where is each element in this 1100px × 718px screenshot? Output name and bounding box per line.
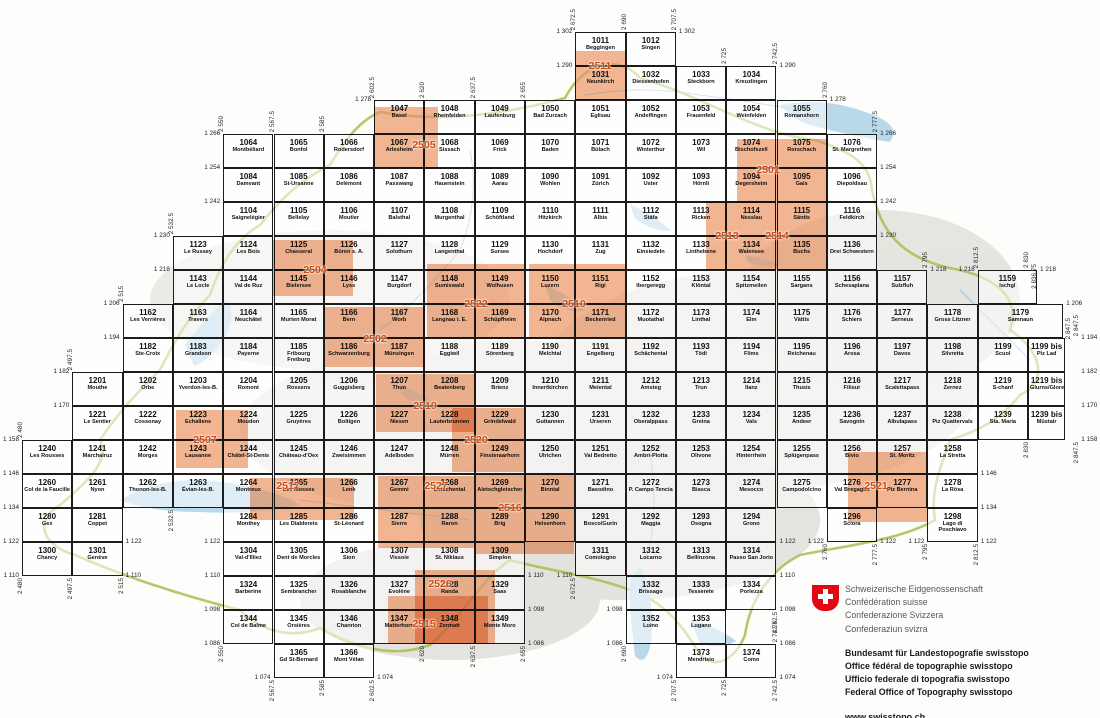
sheet-name: Glurns/Glorenza: [1029, 385, 1064, 391]
sheet-name: Degersheim: [727, 181, 775, 187]
composite-number-2521: 2521: [864, 480, 887, 492]
sheet-name: Grono: [727, 521, 775, 527]
edge-label-east: 2 672.5: [570, 578, 577, 599]
sheet-number: 1166: [325, 308, 373, 317]
sheet-name: Tesserete: [677, 589, 725, 595]
edge-label-east: 2 690: [621, 646, 628, 662]
sheet-name: Feldkirch: [828, 215, 876, 221]
sheet-cell-1313: 1313Bellinzona: [676, 542, 726, 576]
sheet-cell-1236: 1236Savognin: [827, 406, 877, 440]
sheet-cell-1217: 1217Scalettapass: [877, 372, 927, 406]
sheet-number: 1196: [828, 342, 876, 351]
sheet-number: 1257: [878, 444, 926, 453]
sheet-name: Balsthal: [375, 215, 423, 221]
sheet-name: Bivio: [828, 453, 876, 459]
sheet-name: Moutier: [325, 215, 373, 221]
sheet-number: 1090: [526, 172, 574, 181]
sheet-cell-1199: 1199Scuol: [978, 338, 1028, 372]
sheet-name: Chancy: [23, 555, 71, 561]
sheet-cell-1332: 1332Brissago: [626, 576, 676, 610]
sheet-name: Einsiedeln: [627, 249, 675, 255]
composite-number-2514: 2514: [765, 230, 788, 242]
sheet-number: 1305: [275, 546, 323, 555]
sheet-number: 1327: [375, 580, 423, 589]
sheet-name: Binntal: [526, 487, 574, 493]
sheet-cell-1296: 1296Sciora: [827, 508, 877, 542]
sheet-number: 1225: [275, 410, 323, 419]
sheet-number: 1325: [275, 580, 323, 589]
sheet-cell-1087: 1087Passwang: [374, 168, 424, 202]
office-name-en: Federal Office of Topography swisstopo: [845, 686, 1092, 699]
sheet-name: Barberine: [224, 589, 272, 595]
sheet-cell-1172: 1172Muotathal: [626, 304, 676, 338]
edge-label-east: 2 742.5: [772, 680, 779, 701]
sheet-cell-1304: 1304Val-d'Illiez: [223, 542, 273, 576]
sheet-number: 1032: [627, 70, 675, 79]
edge-label-north: 1 170: [53, 402, 69, 409]
sheet-cell-1218: 1218Zernez: [927, 372, 977, 406]
sheet-cell-1281: 1281Coppet: [72, 508, 122, 542]
sheet-number: 1179: [979, 308, 1063, 317]
sheet-cell-1112: 1112Stäfa: [626, 202, 676, 236]
sheet-name: Silvretta: [928, 351, 976, 357]
sheet-cell-1033: 1033Steckborn: [676, 66, 726, 100]
sheet-number: 1075: [778, 138, 826, 147]
sheet-cell-1216: 1216Filisur: [827, 372, 877, 406]
sheet-name: Lyss: [325, 283, 373, 289]
sheet-cell-1219: 1219S-chanf: [978, 372, 1028, 406]
sheet-number: 1231: [576, 410, 624, 419]
edge-label-north: 1 146: [981, 470, 997, 477]
sheet-number: 1224: [224, 410, 272, 419]
sheet-cell-1111: 1111Albis: [575, 202, 625, 236]
sheet-cell-1214: 1214Ilanz: [726, 372, 776, 406]
sheet-number: 1112: [627, 206, 675, 215]
sheet-name: Châtel-St-Denis: [224, 453, 272, 459]
sheet-name: Nyon: [73, 487, 121, 493]
sheet-cell-1334: 1334Porlezza: [726, 576, 776, 610]
sheet-number: 1165: [275, 308, 323, 317]
sheet-cell-1206: 1206Guggisberg: [324, 372, 374, 406]
sheet-number: 1329: [476, 580, 524, 589]
sheet-name: Uster: [627, 181, 675, 187]
edge-label-east: 2 812.5: [973, 247, 980, 268]
sheet-number: 1109: [476, 206, 524, 215]
sheet-name: Schesaplana: [828, 283, 876, 289]
sheet-cell-1089: 1089Aarau: [475, 168, 525, 202]
sheet-cell-1344: 1344Col de Balme: [223, 610, 273, 644]
sheet-cell-1286: 1286St-Léonard: [324, 508, 374, 542]
sheet-name: Hochdorf: [526, 249, 574, 255]
sheet-cell-1143: 1143Le Locle: [173, 270, 223, 304]
sheet-name: Albis: [576, 215, 624, 221]
sheet-cell-1074: 1074Bischofszell: [726, 134, 776, 168]
composite-number-2504: 2504: [303, 264, 326, 276]
edge-label-north: 1 098: [204, 606, 220, 613]
sheet-number: 1237: [878, 410, 926, 419]
edge-label-east: 2 532.5: [168, 213, 175, 234]
sheet-name: Mürren: [425, 453, 473, 459]
sheet-number: 1110: [526, 206, 574, 215]
sheet-cell-1314: 1314Passo San Jorio: [726, 542, 776, 576]
sheet-cell-1032: 1032Diessenhofen: [626, 66, 676, 100]
sheet-number: 1313: [677, 546, 725, 555]
sheet-number: 1193: [677, 342, 725, 351]
sheet-cell-1258: 1258La Stretta: [927, 440, 977, 474]
sheet-name: Porlezza: [727, 589, 775, 595]
sheet-name: Como: [727, 657, 775, 663]
sheet-number: 1311: [576, 546, 624, 555]
sheet-name: Col de la Faucille: [23, 487, 71, 493]
sheet-cell-1195: 1195Reichenau: [777, 338, 827, 372]
sheet-name: Urseren: [576, 419, 624, 425]
sheet-number: 1087: [375, 172, 423, 181]
sheet-name: Zweisimmen: [325, 453, 373, 459]
sheet-number: 1274: [727, 478, 775, 487]
sheet-cell-1197: 1197Davos: [877, 338, 927, 372]
sheet-name: Le Locle: [174, 283, 222, 289]
sheet-name: Innertkirchen: [526, 385, 574, 391]
sheet-number: 1272: [627, 478, 675, 487]
sheet-cell-1051: 1051Eglisau: [575, 100, 625, 134]
swisstopo-url: www.swisstopo.ch: [845, 712, 1092, 718]
sheet-name: Thun: [375, 385, 423, 391]
office-name-de: Bundesamt für Landestopografie swisstopo: [845, 647, 1092, 660]
sheet-number: 1050: [526, 104, 574, 113]
sheet-number: 1132: [627, 240, 675, 249]
sheet-cell-1199-bis: 1199 bisPiz Lad: [1028, 338, 1065, 372]
sheet-cell-1300: 1300Chancy: [22, 542, 72, 576]
sheet-name: Baden: [526, 147, 574, 153]
sheet-name: Hinterrhein: [727, 453, 775, 459]
sheet-name: Schächental: [627, 351, 675, 357]
sheet-number: 1239: [979, 410, 1027, 419]
sheet-name: Evolène: [375, 589, 423, 595]
sheet-number: 1285: [275, 512, 323, 521]
edge-label-east: 2 637.5: [470, 77, 477, 98]
sheet-cell-1254: 1254Hinterrhein: [726, 440, 776, 474]
sheet-cell-1177: 1177Serneus: [877, 304, 927, 338]
sheet-cell-1075: 1075Rorschach: [777, 134, 827, 168]
sheet-number: 1089: [476, 172, 524, 181]
sheet-cell-1146: 1146Lyss: [324, 270, 374, 304]
sheet-number: 1266: [325, 478, 373, 487]
sheet-number: 1314: [727, 546, 775, 555]
sheet-cell-1292: 1292Maggia: [626, 508, 676, 542]
sheet-number: 1334: [727, 580, 775, 589]
sheet-name: Schwarzenburg: [325, 351, 373, 357]
sheet-name: Bielersee: [275, 283, 323, 289]
sheet-cell-1346: 1346Chanrion: [324, 610, 374, 644]
sheet-number: 1352: [627, 614, 675, 623]
sheet-name: Les Rousses: [23, 453, 71, 459]
sheet-cell-1130: 1130Hochdorf: [525, 236, 575, 270]
sheet-number: 1064: [224, 138, 272, 147]
sheet-number: 1264: [224, 478, 272, 487]
sheet-cell-1156: 1156Schesaplana: [827, 270, 877, 304]
sheet-number: 1116: [828, 206, 876, 215]
sheet-cell-1312: 1312Locarno: [626, 542, 676, 576]
sheet-cell-1085: 1085St-Ursanne: [274, 168, 324, 202]
composite-number-2505: 2505: [412, 139, 435, 151]
sheet-number: 1253: [677, 444, 725, 453]
sheet-name: Simplon: [476, 555, 524, 561]
sheet-number: 1163: [174, 308, 222, 317]
sheet-name: Albulapass: [878, 419, 926, 425]
sheet-number: 1217: [878, 376, 926, 385]
sheet-number: 1106: [325, 206, 373, 215]
sheet-name: Biasca: [677, 487, 725, 493]
sheet-name: Grandson: [174, 351, 222, 357]
sheet-number: 1239 bis: [1029, 410, 1064, 419]
sheet-name: St-Ursanne: [275, 181, 323, 187]
sheet-number: 1304: [224, 546, 272, 555]
sheet-number: 1267: [375, 478, 423, 487]
sheet-number: 1281: [73, 512, 121, 521]
sheet-cell-1176: 1176Schiers: [827, 304, 877, 338]
sheet-number: 1178: [928, 308, 976, 317]
sheet-name: Ischgl: [979, 283, 1036, 289]
edge-label-east: 2 760: [822, 82, 829, 98]
sheet-cell-1284: 1284Monthey: [223, 508, 273, 542]
sheet-cell-1260: 1260Col de la Faucille: [22, 474, 72, 508]
sheet-name: Filisur: [828, 385, 876, 391]
sheet-number: 1236: [828, 410, 876, 419]
government-name-fr: Confédération suisse: [845, 596, 1092, 609]
edge-label-north: 1 146: [3, 470, 19, 477]
sheet-cell-1345: 1345Orsières: [274, 610, 324, 644]
sheet-name: Worb: [375, 317, 423, 323]
sheet-number: 1066: [325, 138, 373, 147]
sheet-name: Ambri-Piotta: [627, 453, 675, 459]
edge-label-north: 1 098: [607, 606, 623, 613]
sheet-cell-1086: 1086Delémont: [324, 168, 374, 202]
sheet-number: 1307: [375, 546, 423, 555]
sheet-name: Basodino: [576, 487, 624, 493]
sheet-cell-1091: 1091Zürich: [575, 168, 625, 202]
sheet-name: Lausanne: [174, 453, 222, 459]
sheet-name: Savognin: [828, 419, 876, 425]
sheet-cell-1293: 1293Osogna: [676, 508, 726, 542]
edge-label-north: 1 122: [3, 538, 19, 545]
sheet-number: 1088: [425, 172, 473, 181]
sheet-cell-1124: 1124Les Bois: [223, 236, 273, 270]
sheet-number: 1114: [727, 206, 775, 215]
sheet-name: Olivone: [677, 453, 725, 459]
sheet-number: 1124: [224, 240, 272, 249]
sheet-name: Greina: [677, 419, 725, 425]
sheet-name: Andelfingen: [627, 113, 675, 119]
composite-number-2516: 2516: [498, 502, 521, 514]
sheet-cell-1189: 1189Sörenberg: [475, 338, 525, 372]
sheet-name: Ilanz: [727, 385, 775, 391]
sheet-cell-1290: 1290Helsenhorn: [525, 508, 575, 542]
sheet-name: Kreuzlingen: [727, 79, 775, 85]
edge-label-north: 1 110: [528, 572, 544, 579]
sheet-cell-1104: 1104Saignelégier: [223, 202, 273, 236]
sheet-number: 1129: [476, 240, 524, 249]
sheet-number: 1270: [526, 478, 574, 487]
sheet-name: Saignelégier: [224, 215, 272, 221]
sheet-cell-1263: 1263Évian-les-B.: [173, 474, 223, 508]
sheet-name: Amsteg: [627, 385, 675, 391]
sheet-cell-1164: 1164Neuchâtel: [223, 304, 273, 338]
sheet-number: 1111: [576, 206, 624, 215]
sheet-cell-1215: 1215Thusis: [777, 372, 827, 406]
sheet-cell-1076: 1076St. Margrethen: [827, 134, 877, 168]
sheet-name: Säntis: [778, 215, 826, 221]
edge-label-east: 2 655: [520, 82, 527, 98]
sheet-cell-1106: 1106Moutier: [324, 202, 374, 236]
sheet-number: 1147: [375, 274, 423, 283]
sheet-number: 1208: [425, 376, 473, 385]
sheet-cell-1285: 1285Les Diablerets: [274, 508, 324, 542]
sheet-cell-1250: 1250Ulrichen: [525, 440, 575, 474]
sheet-number: 1306: [325, 546, 373, 555]
sheet-name: Tödi: [677, 351, 725, 357]
sheet-cell-1108: 1108Murgenthal: [424, 202, 474, 236]
edge-label-north: 1 074: [377, 674, 393, 681]
sheet-cell-1238: 1238Piz Quattervals: [927, 406, 977, 440]
sheet-number: 1136: [828, 240, 876, 249]
sheet-number: 1157: [878, 274, 926, 283]
sheet-cell-1252: 1252Ambri-Piotta: [626, 440, 676, 474]
sheet-number: 1047: [375, 104, 423, 113]
sheet-cell-1136: 1136Drei Schwestern: [827, 236, 877, 270]
sheet-cell-1065: 1065Bonfol: [274, 134, 324, 168]
edge-label-north: 1 242: [880, 198, 896, 205]
sheet-name: Coppet: [73, 521, 121, 527]
edge-label-east: 2 690: [621, 14, 628, 30]
edge-label-east: 2 836.75: [1031, 264, 1038, 289]
sheet-name: Sörenberg: [476, 351, 524, 357]
sheet-name: Osogna: [677, 521, 725, 527]
sheet-name: Eglisau: [576, 113, 624, 119]
edge-label-east: 2 602.5: [369, 77, 376, 98]
sheet-cell-1047: 1047Basel: [374, 100, 424, 134]
sheet-cell-1210: 1210Innertkirchen: [525, 372, 575, 406]
edge-label-east: 2 707.5: [671, 9, 678, 30]
sheet-name: Comologno: [576, 555, 624, 561]
sheet-number: 1312: [627, 546, 675, 555]
sheet-cell-1211: 1211Meiental: [575, 372, 625, 406]
sheet-cell-1105: 1105Bellelay: [274, 202, 324, 236]
sheet-number: 1233: [677, 410, 725, 419]
sheet-number: 1051: [576, 104, 624, 113]
edge-label-north: 1 110: [780, 572, 796, 579]
sheet-name: St. Moritz: [878, 453, 926, 459]
government-name-rm: Confederaziun svizra: [845, 623, 1092, 636]
sheet-name: Ulrichen: [526, 453, 574, 459]
sheet-name: Guttannen: [526, 419, 574, 425]
sheet-cell-1072: 1072Winterthur: [626, 134, 676, 168]
sheet-number: 1192: [627, 342, 675, 351]
edge-label-east: 2 777.5: [872, 111, 879, 132]
edge-label-east: 2 497.5: [67, 578, 74, 599]
sheet-number: 1349: [476, 614, 524, 623]
sheet-name: Bonfol: [275, 147, 323, 153]
edge-label-north: 1 122: [981, 538, 997, 545]
sheet-number: 1127: [375, 240, 423, 249]
sheet-number: 1096: [828, 172, 876, 181]
sheet-name: Ricken: [677, 215, 725, 221]
edge-label-east: 2 585: [319, 680, 326, 696]
sheet-number: 1143: [174, 274, 222, 283]
sheet-number: 1271: [576, 478, 624, 487]
sheet-name: Diessenhofen: [627, 79, 675, 85]
sheet-name: Gemmi: [375, 487, 423, 493]
sheet-name: Finsteraarhorn: [476, 453, 524, 459]
sheet-name: Gd St-Bernard: [275, 657, 323, 663]
sheet-number: 1176: [828, 308, 876, 317]
edge-label-east: 2 847.5: [1065, 318, 1072, 339]
sheet-number: 1229: [476, 410, 524, 419]
sheet-number: 1162: [124, 308, 172, 317]
sheet-number: 1246: [325, 444, 373, 453]
sheet-number: 1164: [224, 308, 272, 317]
sheet-name: Stäfa: [627, 215, 675, 221]
sheet-number: 1254: [727, 444, 775, 453]
sheet-cell-1175: 1175Vättis: [777, 304, 827, 338]
sheet-number: 1048: [425, 104, 473, 113]
composite-number-2513: 2513: [715, 230, 738, 242]
edge-label-north: 1 302: [679, 28, 695, 35]
sheet-number: 1198: [928, 342, 976, 351]
sheet-cell-1157: 1157Sulzfluh: [877, 270, 927, 304]
sheet-cell-1353: 1353Lugano: [676, 610, 726, 644]
edge-label-east: 2 672.5: [570, 9, 577, 30]
sheet-cell-1329: 1329Saas: [475, 576, 525, 610]
sheet-cell-1147: 1147Burgdorf: [374, 270, 424, 304]
composite-number-2520: 2520: [464, 434, 487, 446]
sheet-name: Brissago: [627, 589, 675, 595]
sheet-name: Gruyères: [275, 419, 323, 425]
sheet-cell-1253: 1253Olivone: [676, 440, 726, 474]
sheet-number: 1126: [325, 240, 373, 249]
sheet-cell-1309: 1309Simplon: [475, 542, 525, 576]
sheet-name: Grindelwald: [476, 419, 524, 425]
sheet-cell-1242: 1242Morges: [123, 440, 173, 474]
sheet-number: 1070: [526, 138, 574, 147]
office-name-it: Ufficio federale di topografia swisstopo: [845, 673, 1092, 686]
sheet-name: Hörnli: [677, 181, 725, 187]
edge-label-east: 2 777.5: [872, 544, 879, 565]
sheet-number: 1291: [576, 512, 624, 521]
sheet-cell-1291: 1291Bosco/Gurin: [575, 508, 625, 542]
sheet-name: Genève: [73, 555, 121, 561]
sheet-name: Neunkirch: [576, 79, 624, 85]
composite-number-2519: 2519: [413, 400, 436, 412]
sheet-number: 1298: [928, 512, 976, 521]
edge-label-east: 2 515: [118, 286, 125, 302]
sheet-number: 1149: [476, 274, 524, 283]
sheet-name: Frauenfeld: [677, 113, 725, 119]
edge-label-north: 1 254: [880, 164, 896, 171]
sheet-cell-1308: 1308St. Niklaus: [424, 542, 474, 576]
sheet-cell-1203: 1203Yverdon-les-B.: [173, 372, 223, 406]
edge-label-north: 1 254: [204, 164, 220, 171]
sheet-cell-1230: 1230Guttannen: [525, 406, 575, 440]
sheet-cell-1267: 1267Gemmi: [374, 474, 424, 508]
sheet-cell-1182: 1182Ste-Croix: [123, 338, 173, 372]
sheet-number: 1150: [526, 274, 574, 283]
sheet-number: 1093: [677, 172, 725, 181]
sheet-name: Ibergeregg: [627, 283, 675, 289]
sheet-name: Montbéliard: [224, 147, 272, 153]
sheet-cell-1092: 1092Uster: [626, 168, 676, 202]
edge-label-east: 2 620: [419, 82, 426, 98]
sheet-cell-1270: 1270Binntal: [525, 474, 575, 508]
